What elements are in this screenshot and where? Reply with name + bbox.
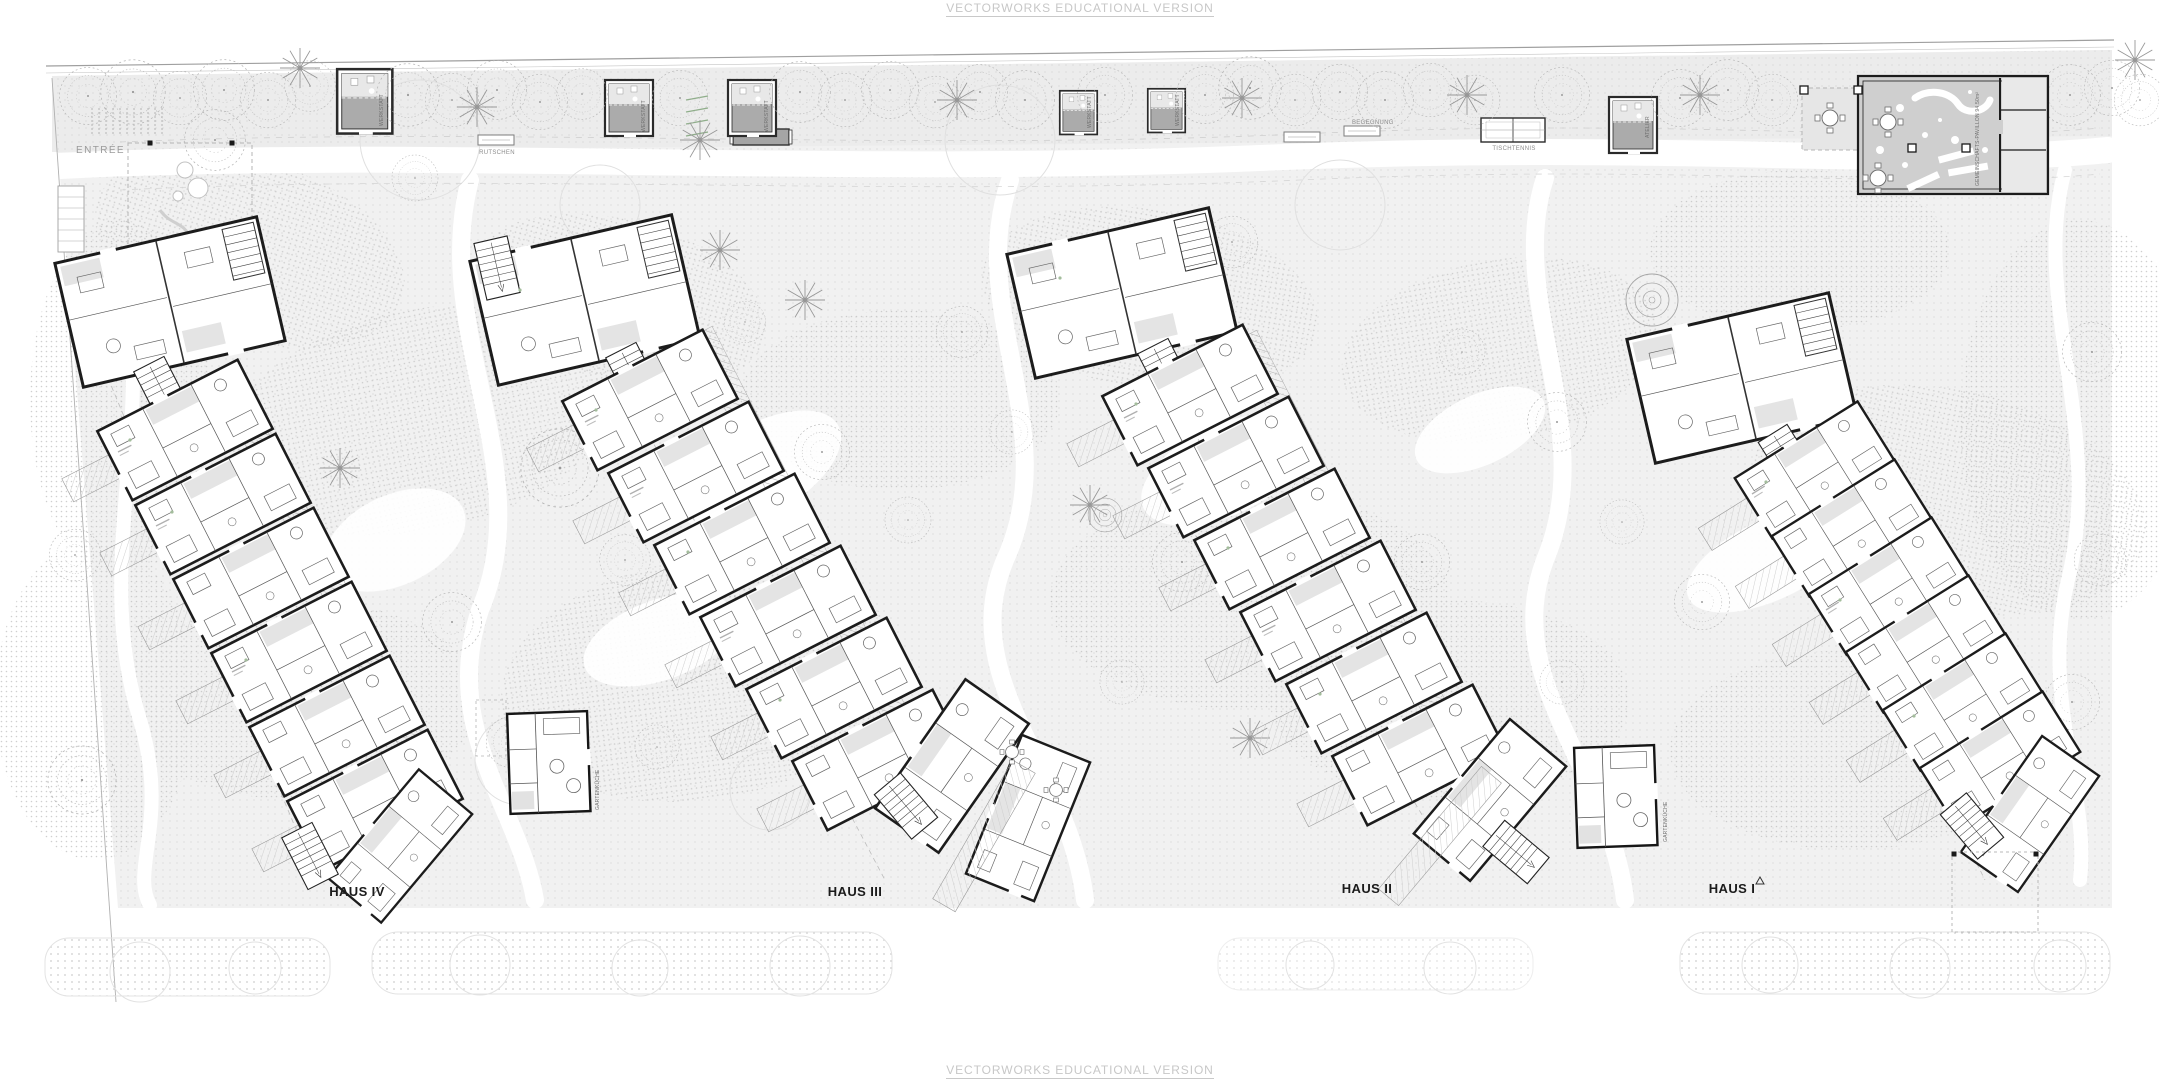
site-plan-drawing xyxy=(0,0,2160,1080)
meeting-label: BEGEGNUNG xyxy=(1352,120,1394,126)
table-tennis-label: TISCHTENNIS xyxy=(1478,146,1550,152)
community-pavilion-label: GEMEINSCHAFTS-PAVILLON 94.50m² xyxy=(1976,92,1981,186)
haus-2-label: HAUS II xyxy=(1312,882,1422,895)
haus-4-label: HAUS IV xyxy=(302,885,412,898)
garden-kitchen-haus4 xyxy=(507,711,592,814)
service-1-label: GARTENKÜCHE xyxy=(596,770,601,810)
pavilion-3-label: WERKSTATT xyxy=(765,100,770,132)
site-plan-page: VECTORWORKS EDUCATIONAL VERSION VECTORWO… xyxy=(0,0,2160,1080)
pavilion-6-label: ATELIER xyxy=(1646,116,1651,138)
pavilion-5-label: WERKSTATT xyxy=(1176,94,1181,126)
haus-1-label: HAUS I xyxy=(1677,882,1787,895)
table-tennis-icon xyxy=(1481,118,1545,142)
watermark-bottom: VECTORWORKS EDUCATIONAL VERSION xyxy=(0,1063,2160,1077)
slides-label: RUTSCHEN xyxy=(462,150,532,156)
bottom-hedge xyxy=(45,932,2110,1002)
haus-3-label: HAUS III xyxy=(800,885,910,898)
pavilion-1-label: WERKSTATT xyxy=(380,94,385,126)
service-2-label: GARTENKÜCHE xyxy=(1664,802,1669,842)
entrance-label: ENTRÉE xyxy=(76,146,125,156)
watermark-top: VECTORWORKS EDUCATIONAL VERSION xyxy=(0,1,2160,15)
garden-kitchen-haus2 xyxy=(1574,745,1659,848)
pavilion-4-label: WERKSTATT xyxy=(1088,96,1093,128)
pavilion-2-label: WERKSTATT xyxy=(642,100,647,132)
